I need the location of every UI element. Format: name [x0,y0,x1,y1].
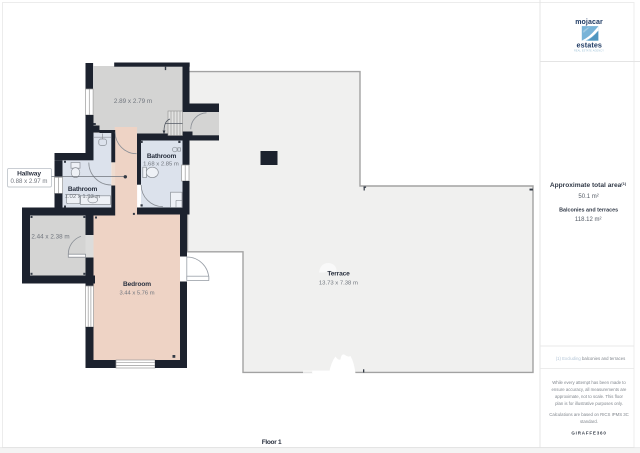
svg-text:Bedroom: Bedroom [123,281,151,288]
svg-text:0.88 x 2.97 m: 0.88 x 2.97 m [11,178,48,185]
svg-text:mojacar: mojacar [575,19,603,26]
svg-text:plan is for illustrative purpo: plan is for illustrative purposes only. [555,401,623,406]
svg-text:Hallway: Hallway [17,171,41,178]
svg-text:Balconies and terraces: Balconies and terraces [559,208,618,214]
svg-text:ensure accuracy, all measureme: ensure accuracy, all measurements are [552,387,628,392]
svg-text:2.44 x 2.38 m: 2.44 x 2.38 m [31,234,69,241]
svg-text:GIRAFFE360: GIRAFFE360 [571,430,606,435]
svg-text:50.1 m²: 50.1 m² [578,194,598,200]
svg-text:Bathroom: Bathroom [68,186,98,193]
svg-text:REAL ESTATE AGENCY: REAL ESTATE AGENCY [574,50,604,53]
svg-text:1.02 x 1.93 m: 1.02 x 1.93 m [65,194,101,200]
svg-text:Approximate total area(1): Approximate total area(1) [550,181,627,190]
svg-text:Floor 1: Floor 1 [262,439,282,446]
svg-text:3.44 x 5.76 m: 3.44 x 5.76 m [119,290,154,296]
svg-text:Terrace: Terrace [327,271,350,278]
svg-text:13.73 x 7.38 m: 13.73 x 7.38 m [319,280,358,286]
svg-text:2.89 x 2.79 m: 2.89 x 2.79 m [114,98,152,105]
svg-text:1.68 x 2.85 m: 1.68 x 2.85 m [143,162,179,168]
svg-text:Calculations are based on RICS: Calculations are based on RICS IPMS 3C [549,412,629,417]
svg-text:While every attempt has been m: While every attempt has been made to [552,380,626,385]
svg-text:118.12 m²: 118.12 m² [575,217,602,223]
svg-text:approximate, not to scale. Thi: approximate, not to scale. This floor [555,394,624,399]
svg-text:estates: estates [577,41,602,50]
svg-text:Bathroom: Bathroom [147,153,177,160]
svg-text:standard.: standard. [580,419,598,424]
svg-text:(1) Excluding balconies and te: (1) Excluding balconies and terraces [556,356,626,361]
